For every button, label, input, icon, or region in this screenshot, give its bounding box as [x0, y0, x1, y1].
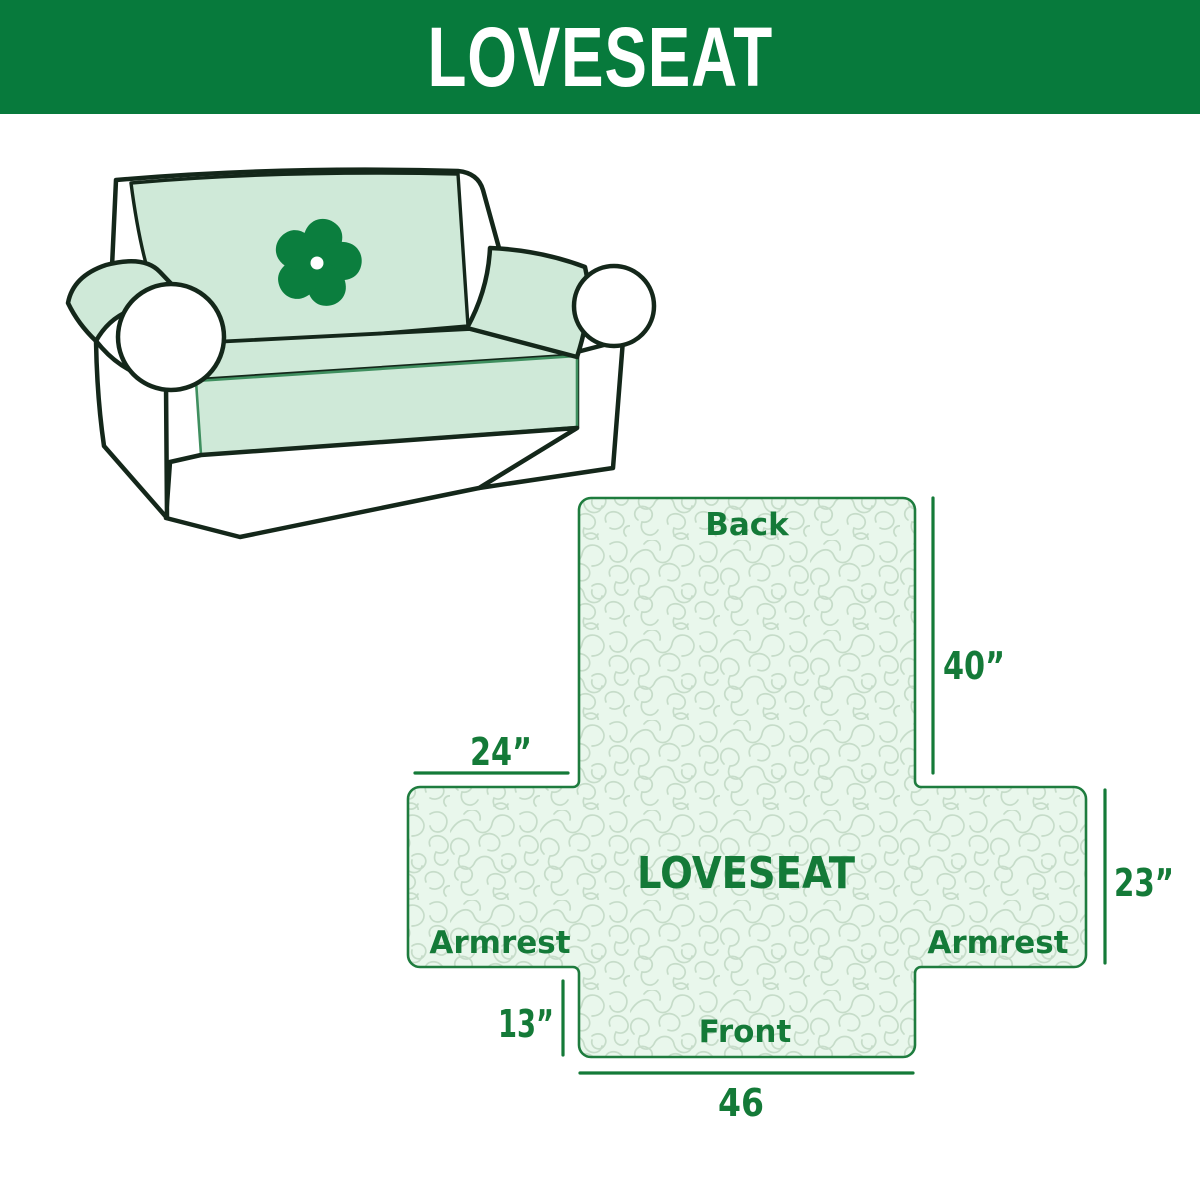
cover-diagram: Back LOVESEAT Armrest Armrest Front 40” … [408, 498, 1174, 1125]
front-width-value: 46 [718, 1081, 764, 1125]
armrest-right-label: Armrest [927, 925, 1068, 961]
sofa-left-arm-roll [118, 284, 224, 390]
armrest-width-value: 24” [470, 730, 532, 774]
sofa-right-arm-roll [574, 266, 654, 346]
cover-outline [408, 498, 1086, 1057]
front-area-label: Front [699, 1014, 792, 1050]
side-height-value: 23” [1114, 861, 1174, 905]
loveseat-graphic: Back LOVESEAT Armrest Armrest Front 40” … [0, 0, 1200, 1200]
back-height-value: 40” [943, 644, 1005, 688]
armrest-left-label: Armrest [429, 925, 570, 961]
back-area-label: Back [705, 507, 790, 543]
front-drop-value: 13” [498, 1002, 554, 1046]
product-label: LOVESEAT [637, 848, 855, 899]
sofa-illustration [68, 170, 654, 537]
